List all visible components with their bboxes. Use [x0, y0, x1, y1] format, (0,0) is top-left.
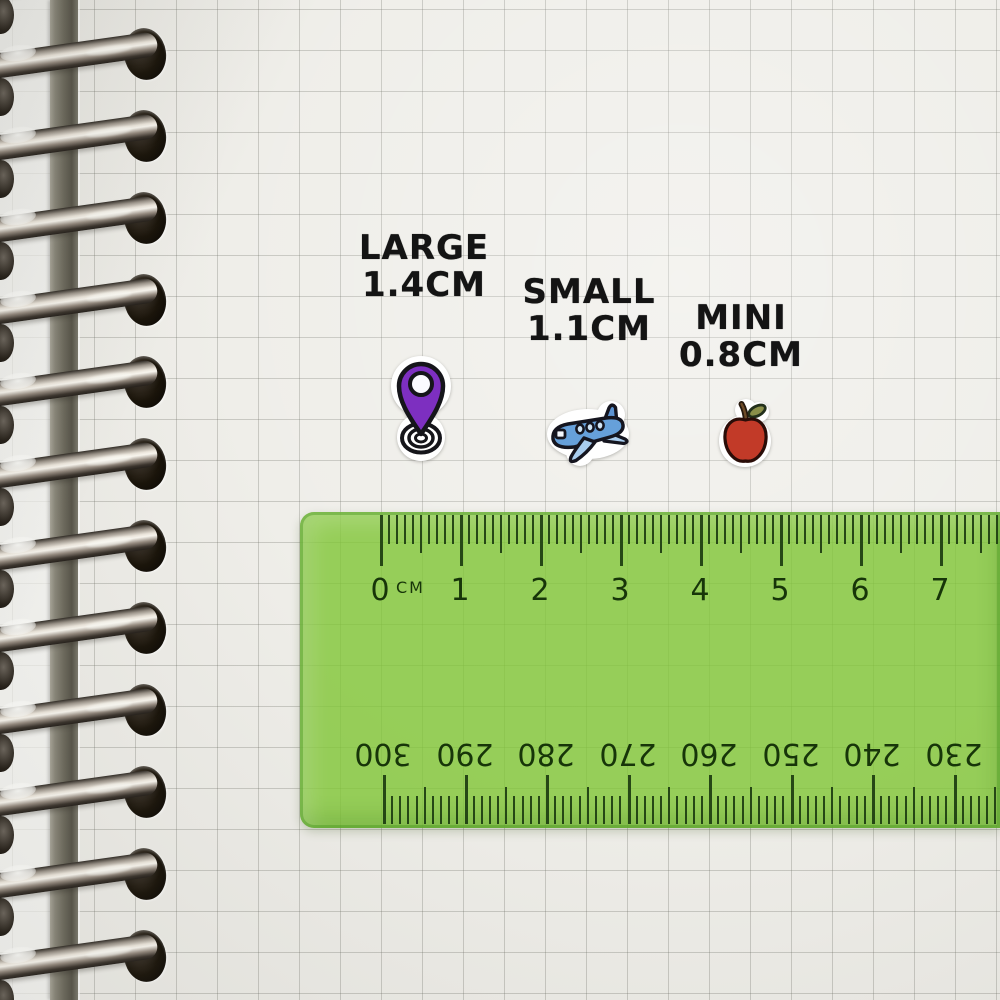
ruler-top-number: 2: [530, 573, 549, 608]
ruler-tick: [604, 515, 606, 544]
ruler-tick: [839, 796, 841, 824]
ruler-tick: [945, 796, 947, 824]
ruler-tick: [962, 796, 964, 824]
label-mini: MINI 0.8CM: [679, 300, 803, 374]
ruler-bottom-number: 290: [436, 736, 493, 771]
ring-end: [0, 488, 14, 526]
ruler-tick: [579, 796, 581, 824]
ruler-tick: [383, 775, 386, 824]
ruler-tick: [436, 515, 438, 544]
ruler-tick: [823, 796, 825, 824]
ruler-tick: [513, 796, 515, 824]
ruler-tick: [954, 775, 957, 824]
ruler-tick: [456, 796, 458, 824]
ring-end: [0, 406, 14, 444]
ruler-tick: [913, 787, 915, 824]
ruler-tick: [905, 796, 907, 824]
ruler-tick: [980, 515, 982, 553]
ruler-tick: [407, 796, 409, 824]
ruler-unit-label: CM: [396, 578, 425, 597]
ruler-tick: [497, 796, 499, 824]
ruler-tick: [468, 515, 470, 544]
ruler-top-number: 3: [610, 573, 629, 608]
ruler-tick: [708, 515, 710, 544]
ruler-tick: [668, 515, 670, 544]
ruler-tick: [864, 796, 866, 824]
ruler-bottom-number: 270: [599, 736, 656, 771]
label-mini-name: MINI: [679, 300, 803, 337]
ruler-tick: [452, 515, 454, 544]
ruler-tick: [937, 796, 939, 824]
ruler-tick: [628, 515, 630, 544]
ruler-tick: [391, 796, 393, 824]
ruler-tick: [908, 515, 910, 544]
ruler: CM 01234567 300290280270260250240230: [300, 512, 1000, 828]
ring-end: [0, 816, 14, 854]
ruler-tick: [432, 796, 434, 824]
ruler-tick: [888, 796, 890, 824]
ruler-tick: [701, 796, 703, 824]
ring-end: [0, 324, 14, 362]
ruler-tick: [880, 796, 882, 824]
ruler-tick: [733, 796, 735, 824]
ruler-tick: [860, 515, 863, 566]
ruler-tick: [852, 515, 854, 544]
ruler-tick: [481, 796, 483, 824]
ruler-tick: [484, 515, 486, 544]
ruler-tick: [505, 787, 507, 824]
ruler-tick: [929, 796, 931, 824]
ruler-tick: [693, 796, 695, 824]
ruler-tick: [676, 515, 678, 544]
ruler-tick: [684, 515, 686, 544]
ruler-tick: [399, 796, 401, 824]
ruler-tick: [556, 515, 558, 544]
ruler-bottom-number: 300: [354, 736, 411, 771]
ruler-tick: [900, 515, 902, 553]
ruler-tick: [772, 515, 774, 544]
ruler-tick: [516, 515, 518, 544]
ruler-tick: [448, 796, 450, 824]
ruler-tick: [611, 796, 613, 824]
ruler-tick: [460, 515, 463, 566]
ruler-tick: [748, 515, 750, 544]
ruler-tick: [388, 515, 390, 544]
ruler-tick: [820, 515, 822, 553]
ruler-tick: [844, 515, 846, 544]
ruler-tick: [619, 796, 621, 824]
ruler-tick: [465, 775, 468, 824]
ruler-top-number: 4: [690, 573, 709, 608]
ruler-tick: [964, 515, 966, 544]
ruler-tick: [508, 515, 510, 544]
ruler-tick: [564, 515, 566, 544]
ruler-tick: [988, 515, 990, 544]
ruler-tick: [636, 515, 638, 544]
ruler-bottom-number: 260: [680, 736, 737, 771]
ruler-tick: [782, 796, 784, 824]
ruler-bottom-number: 250: [762, 736, 819, 771]
ruler-tick: [580, 515, 582, 553]
ruler-tick: [788, 515, 790, 544]
ruler-tick: [532, 515, 534, 544]
ruler-tick: [828, 515, 830, 544]
ruler-tick: [700, 515, 703, 566]
ruler-tick: [796, 515, 798, 544]
ruler-tick: [732, 515, 734, 544]
ruler-bottom-number: 280: [517, 736, 574, 771]
ruler-tick: [978, 796, 980, 824]
ruler-tick: [489, 796, 491, 824]
label-large-name: LARGE: [359, 230, 489, 267]
label-small-size: 1.1CM: [523, 311, 656, 348]
ruler-tick: [424, 787, 426, 824]
ruler-tick: [742, 796, 744, 824]
ruler-tick: [636, 796, 638, 824]
apple-sticker: [715, 395, 776, 469]
ruler-top-number: 1: [450, 573, 469, 608]
ring-end: [0, 734, 14, 772]
ruler-tick: [685, 796, 687, 824]
ruler-tick: [476, 515, 478, 544]
ruler-tick: [831, 787, 833, 824]
notebook-photo: LARGE 1.4CM SMALL 1.1CM MINI 0.8CM: [0, 0, 1000, 1000]
ruler-tick: [404, 515, 406, 544]
ruler-tick: [660, 515, 662, 553]
ruler-tick: [538, 796, 540, 824]
ring-end: [0, 160, 14, 198]
ruler-tick: [972, 515, 974, 544]
ruler-tick: [916, 515, 918, 544]
ruler-tick: [396, 515, 398, 544]
ruler-tick: [812, 515, 814, 544]
ring-end: [0, 898, 14, 936]
ruler-tick: [588, 515, 590, 544]
ruler-tick: [546, 775, 549, 824]
ruler-tick: [804, 515, 806, 544]
ruler-tick: [892, 515, 894, 544]
ruler-tick: [868, 515, 870, 544]
ruler-tick: [896, 796, 898, 824]
ruler-tick: [676, 796, 678, 824]
ruler-tick: [764, 515, 766, 544]
ruler-tick: [836, 515, 838, 544]
ruler-tick: [420, 515, 422, 553]
label-mini-size: 0.8CM: [679, 337, 803, 374]
ruler-tick: [380, 515, 383, 566]
ruler-tick: [717, 796, 719, 824]
ring-end: [0, 980, 14, 1000]
ruler-tick: [612, 515, 614, 544]
ruler-tick: [876, 515, 878, 544]
ruler-tick: [692, 515, 694, 544]
label-large: LARGE 1.4CM: [359, 230, 489, 304]
ruler-tick: [595, 796, 597, 824]
ruler-bottom-number: 230: [925, 736, 982, 771]
ruler-tick: [884, 515, 886, 544]
ruler-tick: [628, 775, 631, 824]
ruler-tick: [668, 787, 670, 824]
label-small-name: SMALL: [523, 274, 656, 311]
ruler-tick: [996, 515, 998, 544]
ruler-tick: [603, 796, 605, 824]
ruler-tick: [716, 515, 718, 544]
ruler-tick: [644, 515, 646, 544]
ruler-tick: [986, 796, 988, 824]
airplane-sticker: [544, 399, 634, 467]
ruler-tick: [587, 787, 589, 824]
ruler-tick: [709, 775, 712, 824]
ruler-tick: [548, 515, 550, 544]
ruler-tick: [791, 775, 794, 824]
ruler-tick: [428, 515, 430, 544]
ruler-tick: [444, 515, 446, 544]
ruler-tick: [596, 515, 598, 544]
ruler-tick: [750, 787, 752, 824]
ruler-tick: [758, 796, 760, 824]
ruler-tick: [948, 515, 950, 544]
ruler-top-number: 5: [770, 573, 789, 608]
ruler-tick: [660, 796, 662, 824]
ring-end: [0, 0, 14, 34]
ruler-bottom-number: 240: [843, 736, 900, 771]
ruler-tick: [756, 515, 758, 544]
ruler-tick: [856, 796, 858, 824]
ring-end: [0, 242, 14, 280]
binding-hole: [120, 0, 170, 1]
ruler-tick: [572, 515, 574, 544]
ruler-tick: [440, 796, 442, 824]
ruler-tick: [921, 796, 923, 824]
ring-end: [0, 652, 14, 690]
label-large-size: 1.4CM: [359, 267, 489, 304]
ruler-tick: [412, 515, 414, 544]
ruler-tick: [956, 515, 958, 544]
ruler-tick: [570, 796, 572, 824]
ruler-tick: [540, 515, 543, 566]
ruler-tick: [652, 796, 654, 824]
ruler-tick: [780, 515, 783, 566]
ruler-tick: [416, 796, 418, 824]
ruler-top-number: 7: [930, 573, 949, 608]
spiral-binding: [0, 0, 200, 1000]
ruler-tick: [970, 796, 972, 824]
ruler-top-number: 6: [850, 573, 869, 608]
ruler-tick: [473, 796, 475, 824]
ruler-tick: [652, 515, 654, 544]
ruler-tick: [554, 796, 556, 824]
ruler-tick: [644, 796, 646, 824]
ruler-tick: [994, 787, 996, 824]
ruler-tick: [924, 515, 926, 544]
ruler-tick: [774, 796, 776, 824]
ruler-tick: [932, 515, 934, 544]
ruler-tick: [500, 515, 502, 553]
ruler-tick: [725, 796, 727, 824]
ruler-tick: [799, 796, 801, 824]
label-small: SMALL 1.1CM: [523, 274, 656, 348]
ruler-tick: [740, 515, 742, 553]
ruler-tick: [815, 796, 817, 824]
ruler-tick: [522, 796, 524, 824]
ruler-tick: [492, 515, 494, 544]
ruler-tick: [766, 796, 768, 824]
ruler-tick: [724, 515, 726, 544]
ruler-tick: [848, 796, 850, 824]
ruler-top-number: 0: [370, 573, 389, 608]
ring-end: [0, 570, 14, 608]
ruler-tick: [562, 796, 564, 824]
ruler-tick: [530, 796, 532, 824]
ruler-tick: [807, 796, 809, 824]
ruler-tick: [940, 515, 943, 566]
ring-end: [0, 78, 14, 116]
ruler-tick: [620, 515, 623, 566]
ruler-tick: [524, 515, 526, 544]
location-pin-sticker: [387, 344, 455, 463]
ruler-tick: [872, 775, 875, 824]
